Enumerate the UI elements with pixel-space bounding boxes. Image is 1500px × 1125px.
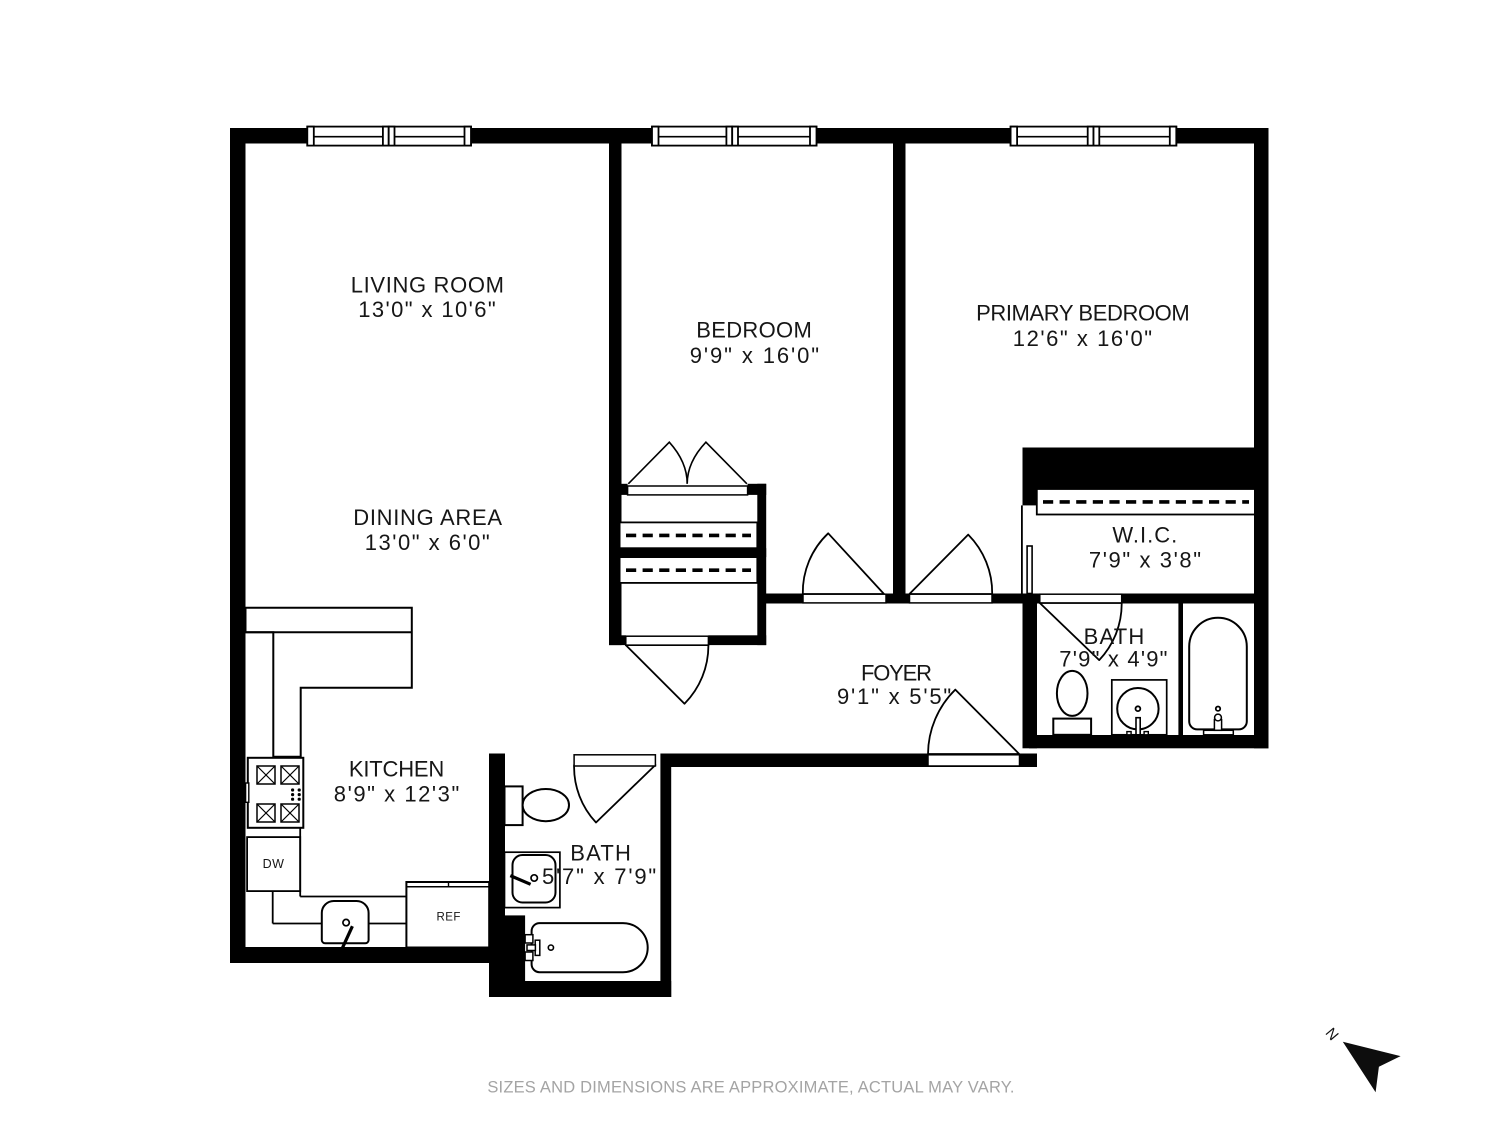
svg-text:13'0" x 10'6": 13'0" x 10'6" <box>358 297 497 322</box>
svg-text:SIZES AND DIMENSIONS ARE APPRO: SIZES AND DIMENSIONS ARE APPROXIMATE, AC… <box>487 1079 1014 1097</box>
svg-text:BATH: BATH <box>570 841 632 866</box>
svg-text:9'1" x 5'5": 9'1" x 5'5" <box>837 684 953 709</box>
svg-text:REF: REF <box>436 912 461 924</box>
svg-text:DW: DW <box>263 857 285 871</box>
svg-text:PRIMARY BEDROOM: PRIMARY BEDROOM <box>976 301 1189 326</box>
svg-text:7'9" x 3'8": 7'9" x 3'8" <box>1089 547 1203 572</box>
svg-text:DINING AREA: DINING AREA <box>353 505 503 530</box>
svg-text:KITCHEN: KITCHEN <box>349 757 444 782</box>
svg-text:13'0" x 6'0": 13'0" x 6'0" <box>365 530 491 555</box>
svg-text:9'9" x 16'0": 9'9" x 16'0" <box>690 343 821 368</box>
svg-text:8'9" x 12'3": 8'9" x 12'3" <box>334 782 461 807</box>
svg-text:BATH: BATH <box>1084 624 1146 649</box>
svg-text:W.I.C.: W.I.C. <box>1112 523 1178 548</box>
svg-text:7'9" x 4'9": 7'9" x 4'9" <box>1059 646 1168 671</box>
svg-text:5'7" x 7'9": 5'7" x 7'9" <box>542 864 658 889</box>
svg-text:FOYER: FOYER <box>861 661 931 686</box>
svg-text:BEDROOM: BEDROOM <box>696 318 812 343</box>
svg-text:12'6" x 16'0": 12'6" x 16'0" <box>1013 326 1154 351</box>
svg-text:LIVING ROOM: LIVING ROOM <box>351 273 505 298</box>
